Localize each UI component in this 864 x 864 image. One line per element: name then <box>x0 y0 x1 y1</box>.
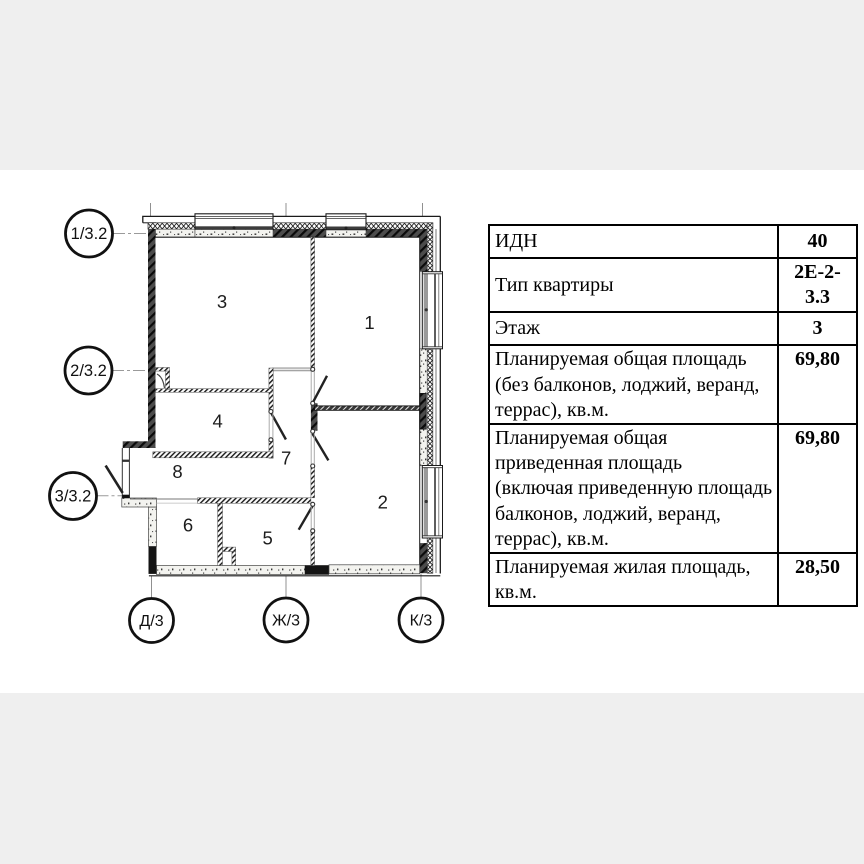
svg-text:3: 3 <box>217 291 227 312</box>
svg-text:4: 4 <box>212 411 222 432</box>
svg-text:3/3.2: 3/3.2 <box>55 488 92 506</box>
svg-text:5: 5 <box>262 528 272 549</box>
svg-text:Ж/3: Ж/3 <box>272 613 300 630</box>
svg-text:1: 1 <box>364 312 374 333</box>
svg-text:8: 8 <box>172 461 182 482</box>
svg-text:2/3.2: 2/3.2 <box>70 362 107 380</box>
svg-text:2: 2 <box>378 492 388 513</box>
svg-text:7: 7 <box>281 448 291 469</box>
svg-text:Д/3: Д/3 <box>139 613 163 630</box>
svg-text:6: 6 <box>183 515 193 536</box>
svg-text:К/3: К/3 <box>410 613 433 630</box>
svg-text:1/3.2: 1/3.2 <box>71 225 108 243</box>
